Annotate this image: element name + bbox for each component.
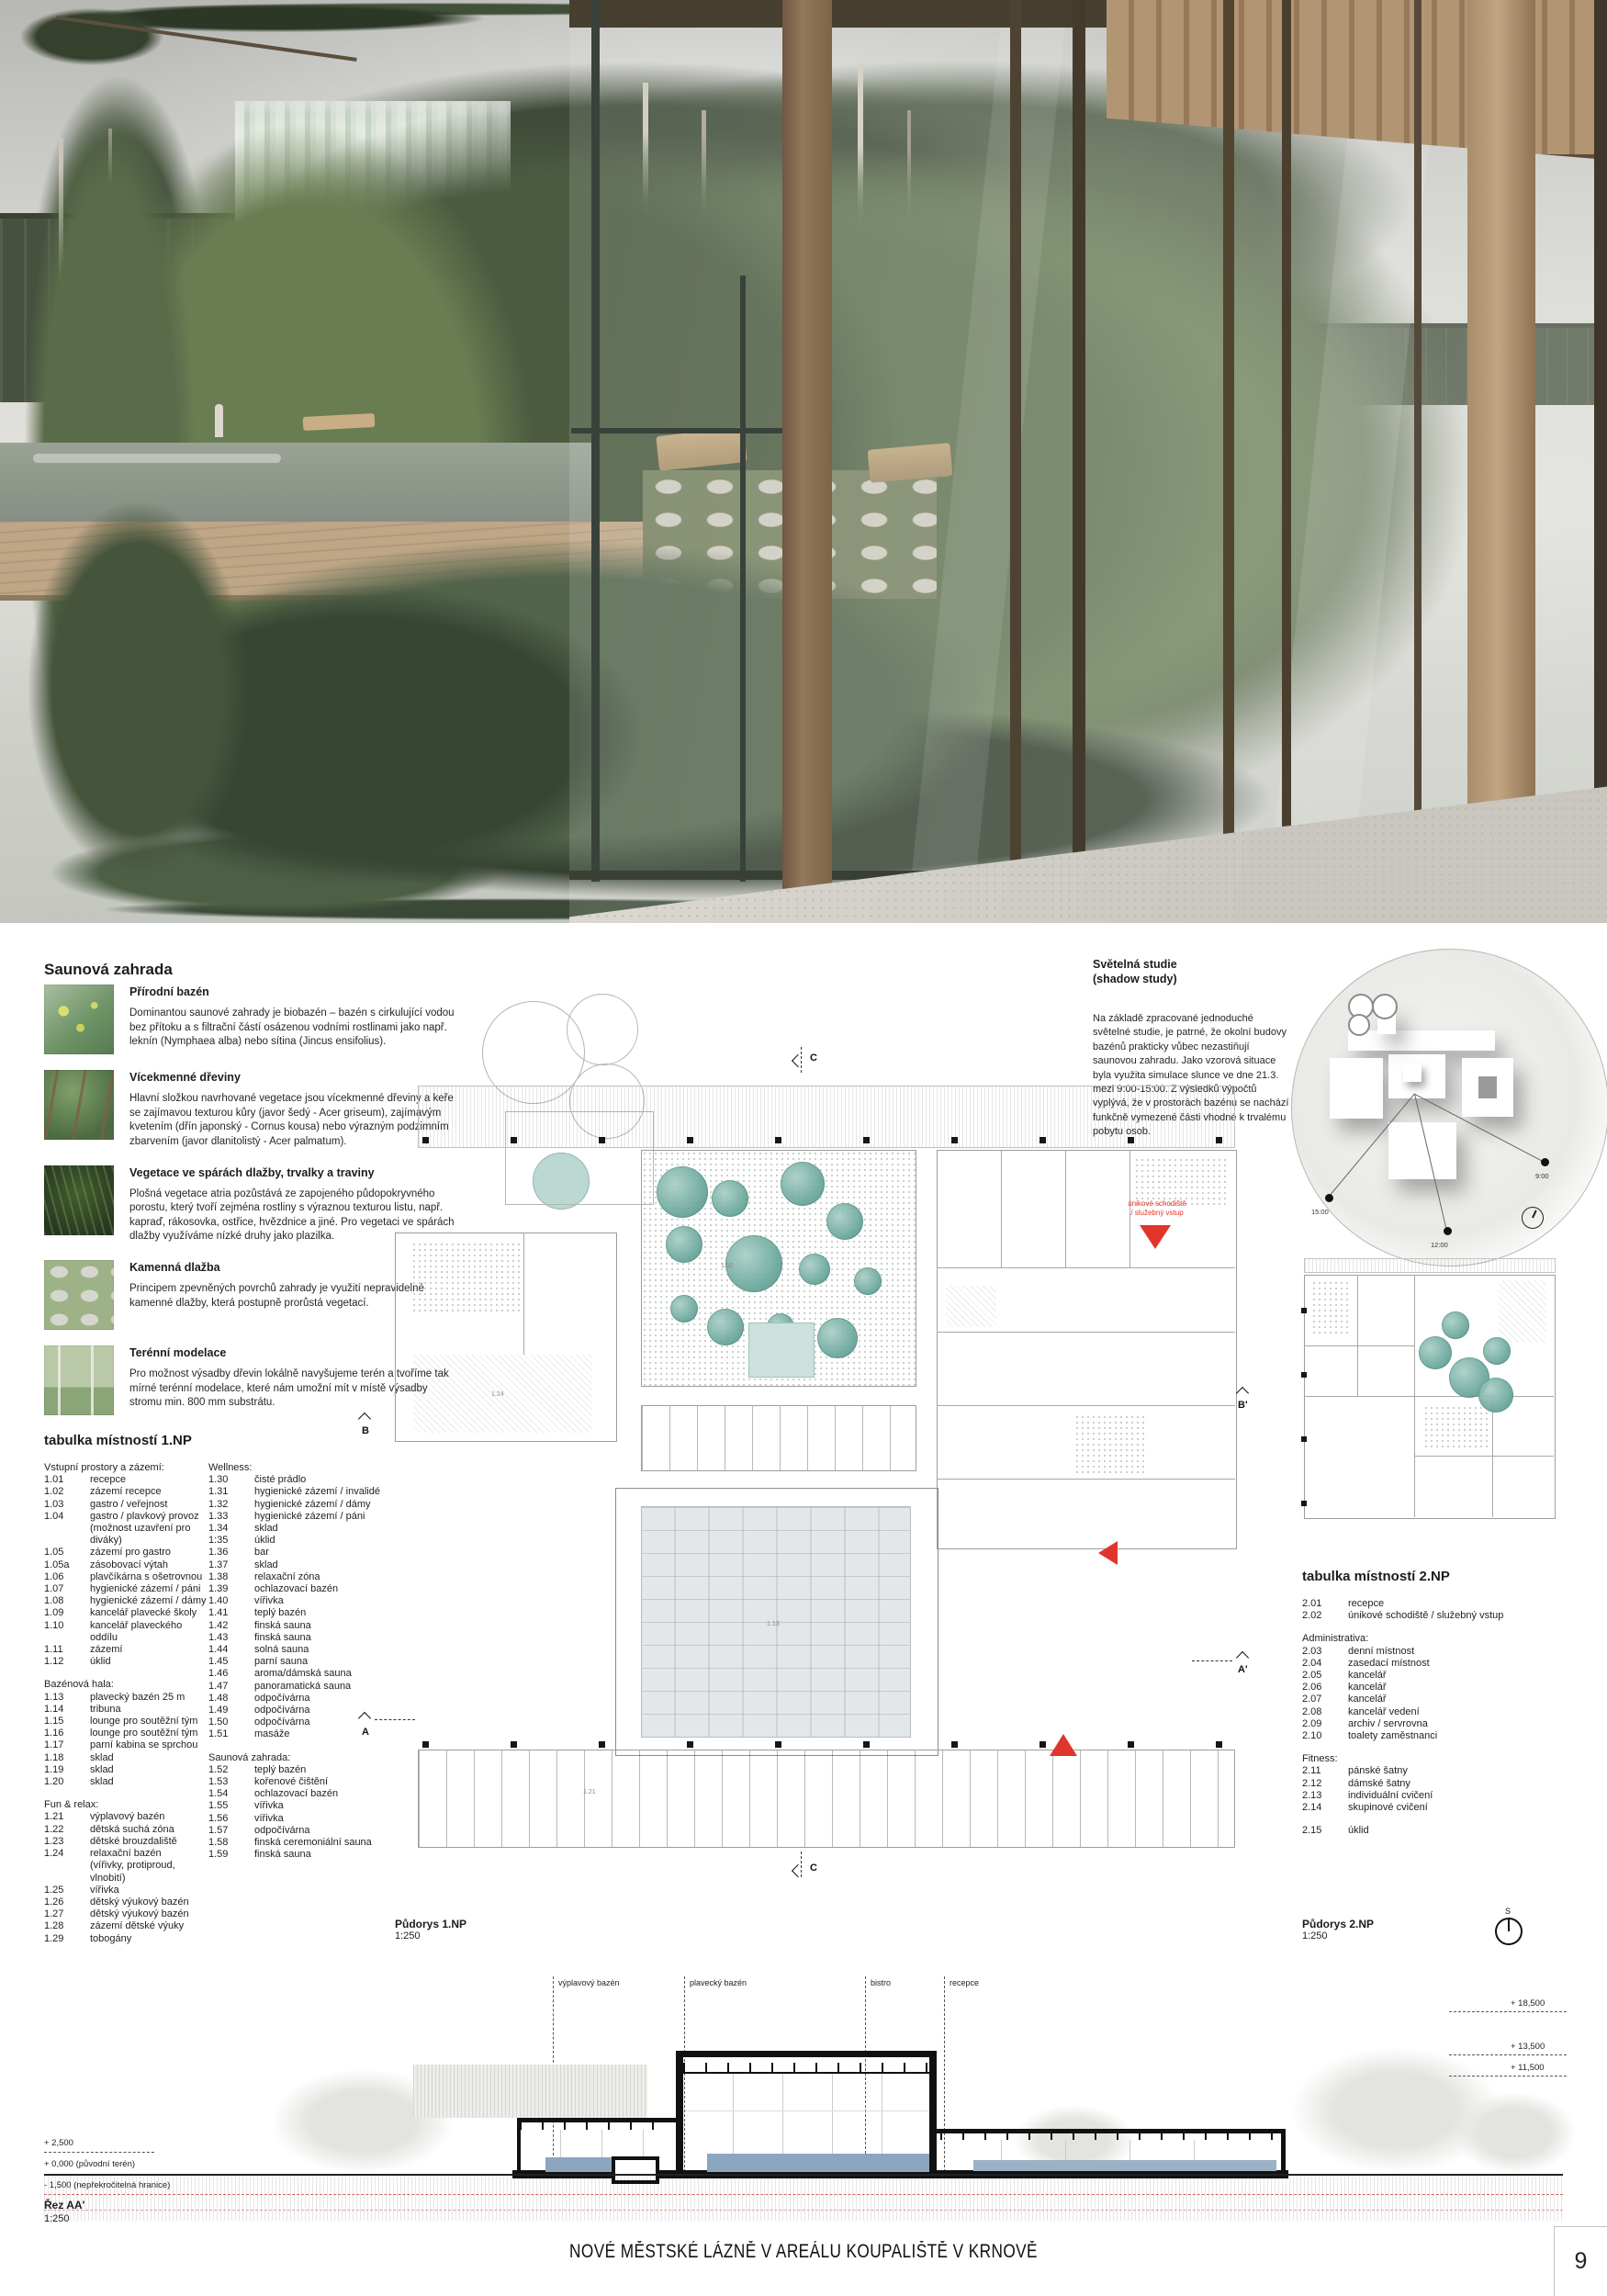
room-number-cell: 1.51 — [208, 1728, 254, 1740]
tree-canopy — [666, 1226, 702, 1263]
room-label-cell: odpočívárna — [254, 1693, 310, 1705]
room-number-cell: Fun & relax: — [44, 1799, 98, 1811]
room-number-cell: 1.04 — [44, 1511, 90, 1523]
shadow-study-title: Světelná studie (shadow study) — [1093, 957, 1177, 987]
garden-thumbnail-image — [44, 1165, 114, 1235]
shadow-study-title-line1: Světelná studie — [1093, 957, 1177, 972]
garden-thumbnail-image — [44, 1345, 114, 1415]
room-table-row — [44, 1668, 208, 1679]
ground-line — [44, 2174, 1563, 2176]
room-table-row: 1.20 sklad — [44, 1776, 208, 1788]
room-table-row: 1.09 kancelář plavecké školy — [44, 1607, 208, 1619]
room-number-cell: 1.50 — [208, 1716, 254, 1728]
room-number-cell: 1.28 — [44, 1920, 90, 1932]
room-number-cell: 1:35 — [208, 1535, 254, 1547]
glass-mullion-5 — [1282, 0, 1291, 923]
room-number-cell: 1.33 — [208, 1511, 254, 1523]
north-needle — [1508, 1919, 1510, 1931]
room-label-cell: výplavový bazén — [90, 1811, 164, 1823]
room-table-row — [1302, 1742, 1532, 1753]
room-label-cell: odpočívárna — [254, 1825, 310, 1837]
section-name: Řez AA' — [44, 2199, 84, 2212]
room-label-cell: úklid — [254, 1535, 275, 1547]
room-label-cell: archiv / servrovna — [1348, 1718, 1428, 1730]
room-number-cell — [44, 1668, 90, 1679]
limit-line-red — [44, 2210, 1563, 2211]
elevation-label: - 1,500 (nepřekročitelná hranice) — [44, 2180, 170, 2190]
room-number-cell: 2.03 — [1302, 1646, 1348, 1658]
room-label-cell: sklad — [90, 1776, 114, 1788]
room-table-row: 2.10 toalety zaměstnanci — [1302, 1730, 1532, 1742]
building-mass-core — [1403, 1064, 1422, 1082]
elevation-leader — [1449, 2076, 1567, 2077]
room-table-row: 1.43 finská sauna — [208, 1632, 397, 1644]
room-label-cell: odpočívárna — [254, 1705, 310, 1716]
room-number-cell: 1.56 — [208, 1813, 254, 1825]
room-table-row: 1.34 sklad — [208, 1523, 397, 1535]
tree-canopy — [670, 1295, 698, 1322]
room-table-row: 1.26 dětský výukový bazén — [44, 1896, 208, 1908]
background-building — [413, 2065, 647, 2118]
section-wall — [517, 2118, 521, 2175]
room-table-row: 1.08 hygienické zázemí / dámy — [44, 1595, 208, 1607]
tree-canopy — [712, 1180, 748, 1217]
room-number-cell: 1.29 — [44, 1933, 90, 1945]
room-label-cell: (možnost uzavření pro diváky) — [90, 1523, 208, 1547]
room-number-cell: 2.01 — [1302, 1598, 1348, 1610]
room-number: 1.21 — [583, 1789, 596, 1795]
room-number-cell: 1.14 — [44, 1704, 90, 1716]
room-number-cell: 1.16 — [44, 1728, 90, 1739]
room-number-cell: 1.34 — [208, 1523, 254, 1535]
section-marker-b-prime: B' — [1238, 1400, 1248, 1411]
tree-canopy — [725, 1235, 782, 1292]
room-label-cell: vířivka — [254, 1800, 284, 1812]
room-label-cell: kancelář vedení — [1348, 1706, 1420, 1718]
partition-wall — [1065, 1150, 1066, 1267]
room-number: 1.24 — [491, 1391, 504, 1398]
table-1np-title: tabulka místností 1.NP — [44, 1433, 192, 1448]
room-label-cell: parní sauna — [254, 1656, 308, 1668]
label-leader — [944, 1976, 945, 2172]
room-table-row: 1.19 sklad — [44, 1764, 208, 1776]
room-table-row: Fitness: — [1302, 1753, 1532, 1765]
floor-plan-1np: 1.52 1.13 1.24 1.21 — [395, 992, 1235, 1869]
room-number-cell: Bazénová hala: — [44, 1679, 114, 1691]
room-label-cell: hygienické zázemí / dámy — [90, 1595, 207, 1607]
room-table-row: 1.22 dětská suchá zóna — [44, 1824, 208, 1836]
room-number-cell: 1.59 — [208, 1849, 254, 1861]
room-table-row: 1.46 aroma/dámská sauna — [208, 1668, 397, 1680]
room-number-cell: 1.58 — [208, 1837, 254, 1849]
room-label-cell: lounge pro soutěžní tým — [90, 1728, 197, 1739]
room-table-row: 1.59 finská sauna — [208, 1849, 397, 1861]
room-table-row: 1.58 finská ceremoniální sauna — [208, 1837, 397, 1849]
room-label-cell: (vířivky, protiproud, vlnobití) — [90, 1860, 208, 1884]
room-table-row: (možnost uzavření pro diváky) — [44, 1523, 208, 1547]
room-table-row: Fun & relax: — [44, 1799, 208, 1811]
section-label: recepce — [950, 1978, 979, 1987]
room-number-cell: 1.46 — [208, 1668, 254, 1680]
room-table-row: 1.05 zázemí pro gastro — [44, 1547, 208, 1559]
room-table-row: 1.29 tobogány — [44, 1933, 208, 1945]
room-table-row: 1.36 bar — [208, 1547, 397, 1559]
room-number-cell: Vstupní prostory a zázemí: — [44, 1462, 164, 1474]
room-label-cell: dětské brouzdaliště — [90, 1836, 177, 1848]
room-label-cell: zázemí recepce — [90, 1486, 162, 1498]
room-number-cell — [1302, 1622, 1348, 1633]
room-label-cell: sklad — [254, 1559, 278, 1571]
room-label-cell: panoramatická sauna — [254, 1681, 351, 1693]
room-table-row: 1.06 plavčíkárna s ošetrovnou — [44, 1571, 208, 1583]
column-row — [422, 1137, 1229, 1143]
tree-canopy — [781, 1162, 825, 1206]
section-transom — [685, 2110, 929, 2111]
timber-column-a — [782, 0, 832, 923]
hatched-room — [946, 1286, 996, 1327]
room-label-cell: únikové schodiště / služebný vstup — [1348, 1610, 1503, 1622]
hatched-room — [1499, 1280, 1546, 1343]
hatched-room — [1311, 1280, 1352, 1335]
pool-water-relax — [973, 2160, 1276, 2171]
room-number-cell: 1.45 — [208, 1656, 254, 1668]
room-label-cell: vířivka — [254, 1813, 284, 1825]
room-number-cell: 2.15 — [1302, 1825, 1348, 1837]
elevation-label: + 0,000 (původní terén) — [44, 2159, 135, 2169]
room-table-row: 1.01 recepce — [44, 1474, 208, 1486]
annotation-line2: / služebný vstup — [1107, 1209, 1208, 1218]
room-number: 1.13 — [767, 1621, 780, 1627]
room-table-row: 1.25 vířivka — [44, 1885, 208, 1896]
room-table-row: 1.03 gastro / veřejnost — [44, 1499, 208, 1511]
room-label-cell: zázemí dětské výuky — [90, 1920, 184, 1932]
label-leader — [684, 1976, 685, 2172]
timber-column-b — [1467, 0, 1535, 923]
room-number-cell — [1302, 1742, 1348, 1753]
entrance-marker-triangle-up — [1050, 1734, 1077, 1756]
hatched-room — [1074, 1414, 1148, 1474]
floor-plan-2np — [1304, 1258, 1566, 1534]
room-label-cell: recepce — [90, 1474, 126, 1486]
room-number-cell: 1.01 — [44, 1474, 90, 1486]
room-number-cell: 2.12 — [1302, 1778, 1348, 1790]
room-table-row: 1.37 sklad — [208, 1559, 397, 1571]
room-table-row: 1.45 parní sauna — [208, 1656, 397, 1668]
room-label-cell: ochlazovací bazén — [254, 1583, 338, 1595]
partition-wall — [1357, 1275, 1358, 1396]
room-number-cell — [208, 1741, 254, 1752]
room-table-row: Administrativa: — [1302, 1633, 1532, 1645]
room-table-row: Vstupní prostory a zázemí: — [44, 1462, 208, 1474]
section-marker-c-top: C — [810, 1052, 817, 1064]
room-table-row: 1.32 hygienické zázemí / dámy — [208, 1499, 397, 1511]
room-table-row: 2.01 recepce — [1302, 1598, 1532, 1610]
room-label-cell: hygienické zázemí / páni — [90, 1583, 200, 1595]
tree-canopy — [817, 1318, 858, 1358]
room-label-cell: odpočívárna — [254, 1716, 310, 1728]
room-table-row: 1.44 solná sauna — [208, 1644, 397, 1656]
room-number-cell: 1.25 — [44, 1885, 90, 1896]
room-table-row: 2.11 pánské šatny — [1302, 1765, 1532, 1777]
room-table-row: 1.21 výplavový bazén — [44, 1811, 208, 1823]
room-number-cell: Fitness: — [1302, 1753, 1338, 1765]
room-table-row: 1.38 relaxační zóna — [208, 1571, 397, 1583]
room-label-cell: kořenové čištění — [254, 1776, 328, 1788]
section-truss — [683, 2063, 929, 2074]
section-roof — [676, 2051, 937, 2057]
limit-line-red — [44, 2194, 1563, 2195]
section-marker-chevron — [1236, 1651, 1249, 1664]
room-number-cell — [44, 1788, 90, 1799]
room-table-row: 1.28 zázemí dětské výuky — [44, 1920, 208, 1932]
changing-rooms-band — [418, 1750, 1235, 1848]
room-table-row: 2.14 skupinové cvičení — [1302, 1802, 1532, 1814]
partition-wall — [1304, 1396, 1554, 1397]
room-label-cell: finská sauna — [254, 1620, 311, 1632]
room-table-row: 1.39 ochlazovací bazén — [208, 1583, 397, 1595]
table-2np-rows: 2.01 recepce 2.02 únikové schodiště / sl… — [1302, 1598, 1532, 1837]
elevation-label: + 2,500 — [44, 2138, 73, 2148]
room-label-cell: hygienické zázemí / invalidé — [254, 1486, 380, 1498]
toboggan-tube-circle — [1348, 1014, 1370, 1036]
north-label: S — [1505, 1907, 1511, 1916]
room-table-row: 1.02 zázemí recepce — [44, 1486, 208, 1498]
room-number-cell: 2.02 — [1302, 1610, 1348, 1622]
building-mass — [1330, 1058, 1383, 1119]
room-number-cell: 2.14 — [1302, 1802, 1348, 1814]
room-table-row: 2.03 denní místnost — [1302, 1646, 1532, 1658]
room-label-cell: denní místnost — [1348, 1646, 1414, 1658]
room-label-cell: dětský výukový bazén — [90, 1908, 189, 1920]
room-table-row: 2.12 dámské šatny — [1302, 1778, 1532, 1790]
sun-position-dot-9 — [1541, 1158, 1549, 1166]
tree-canopy — [1483, 1337, 1511, 1365]
room-table-row: Bazénová hala: — [44, 1679, 208, 1691]
door-frame — [740, 276, 746, 882]
room-table-row: 2.15 úklid — [1302, 1825, 1532, 1837]
room-number-cell: 1.53 — [208, 1776, 254, 1788]
room-label-cell: skupinové cvičení — [1348, 1802, 1428, 1814]
elevation-label: + 13,500 — [1511, 2042, 1545, 2052]
room-number-cell: 1.19 — [44, 1764, 90, 1776]
room-table-row: 1.52 teplý bazén — [208, 1764, 397, 1776]
facade-edge — [1594, 0, 1607, 923]
room-number-cell: 1.24 — [44, 1848, 90, 1860]
room-number-cell: 1.38 — [208, 1571, 254, 1583]
room-table-row: 2.06 kancelář — [1302, 1682, 1532, 1694]
room-label-cell: sklad — [254, 1523, 278, 1535]
room-table-row: 1.17 parní kabina se sprchou — [44, 1739, 208, 1751]
sauna-garden-title: Saunová zahrada — [44, 961, 173, 979]
room-table-row: Saunová zahrada: — [208, 1752, 397, 1764]
room-table-row: 1.49 odpočívárna — [208, 1705, 397, 1716]
label-leader — [865, 1976, 866, 2172]
room-label-cell: finská sauna — [254, 1849, 311, 1861]
partition-wall — [937, 1332, 1235, 1333]
toboggan-tube-circle — [1372, 994, 1398, 1019]
plan2-label: Půdorys 2.NP — [1302, 1918, 1374, 1930]
room-label-cell: kancelář — [1348, 1670, 1387, 1682]
garden-thumbnail-image — [44, 985, 114, 1054]
section-label: bistro — [871, 1978, 891, 1987]
glass-mullion-4 — [1223, 0, 1234, 923]
elevation-label: + 11,500 — [1511, 2063, 1545, 2073]
room-table-row: 1.54 ochlazovací bazén — [208, 1788, 397, 1800]
section-truss — [520, 2122, 674, 2130]
plan1-scale: 1:250 — [395, 1930, 466, 1941]
plan1-caption: Půdorys 1.NP 1:250 — [395, 1918, 466, 1941]
room-table-row: 1.13 plavecký bazén 25 m — [44, 1692, 208, 1704]
room-label-cell: ochlazovací bazén — [254, 1788, 338, 1800]
room-label-cell: parní kabina se sprchou — [90, 1739, 197, 1751]
room-number-cell: 1.13 — [44, 1692, 90, 1704]
room-table-row: 1.16 lounge pro soutěžní tým — [44, 1728, 208, 1739]
room-number-cell: 1.27 — [44, 1908, 90, 1920]
presentation-board: Saunová zahrada Přírodní bazén Dominanto… — [0, 0, 1607, 2296]
room-table-row: 2.09 archiv / servrovna — [1302, 1718, 1532, 1730]
room-number-cell: Wellness: — [208, 1462, 252, 1474]
room-number-cell: 1.41 — [208, 1607, 254, 1619]
room-label-cell: zázemí — [90, 1644, 122, 1656]
section-label: plavecký bazén — [690, 1978, 747, 1987]
room-number-cell: 1.20 — [44, 1776, 90, 1788]
section-wall — [929, 2051, 937, 2175]
room-number-cell: 1.47 — [208, 1681, 254, 1693]
room-table-row: 1.55 vířivka — [208, 1800, 397, 1812]
room-table-row: 1:35 úklid — [208, 1535, 397, 1547]
tree-canopy — [1419, 1336, 1452, 1369]
room-number-cell: 2.05 — [1302, 1670, 1348, 1682]
room-label-cell: vířivka — [254, 1595, 284, 1607]
pool-water-main — [707, 2154, 929, 2172]
room-label-cell: toalety zaměstnanci — [1348, 1730, 1437, 1742]
section-label: výplavový bazén — [558, 1978, 620, 1987]
room-number-cell: 2.13 — [1302, 1790, 1348, 1802]
garden-warm-pool — [748, 1322, 815, 1378]
room-label-cell: aroma/dámská sauna — [254, 1668, 352, 1680]
room-label-cell: plavčíkárna s ošetrovnou — [90, 1571, 202, 1583]
room-label-cell: teplý bazén — [254, 1764, 306, 1776]
room-number-cell: 1.12 — [44, 1656, 90, 1668]
room-number-cell: 1.15 — [44, 1716, 90, 1728]
sun-time-label: 12:00 — [1431, 1241, 1448, 1249]
room-number-cell: 1.18 — [44, 1752, 90, 1764]
shadow-study-title-line2: (shadow study) — [1093, 972, 1177, 986]
partition-wall — [523, 1232, 524, 1355]
room-number-cell: Administrativa: — [1302, 1633, 1368, 1645]
room-number-cell: 1.32 — [208, 1499, 254, 1511]
room-number-cell: 1.49 — [208, 1705, 254, 1716]
room-label-cell: tobogány — [90, 1933, 131, 1945]
glass-mullion-3 — [1073, 0, 1085, 923]
room-number-cell: 1.07 — [44, 1583, 90, 1595]
subsoil-hatch — [44, 2177, 1563, 2221]
room-number-cell: 1.40 — [208, 1595, 254, 1607]
room-table-row: 2.04 zasedací místnost — [1302, 1658, 1532, 1670]
partition-wall — [1414, 1456, 1554, 1457]
room-table-row: 1.24 relaxační bazén — [44, 1848, 208, 1860]
room-label-cell: zásobovací výtah — [90, 1559, 168, 1571]
room-number-cell: 1.23 — [44, 1836, 90, 1848]
section-marker-c-bottom: C — [810, 1863, 817, 1874]
section-marker-b: B — [362, 1425, 369, 1436]
room-table-row: 1.48 odpočívárna — [208, 1693, 397, 1705]
room-table-row: 1.41 teplý bazén — [208, 1607, 397, 1619]
room-number-cell: 1.22 — [44, 1824, 90, 1836]
room-number-cell — [1302, 1814, 1348, 1825]
room-label-cell: pánské šatny — [1348, 1765, 1408, 1777]
room-number-cell: 1.11 — [44, 1644, 90, 1656]
rendering-sauna-garden — [0, 0, 1607, 923]
room-number-cell: 1.08 — [44, 1595, 90, 1607]
room-table-row: 1.33 hygienické zázemí / páni — [208, 1511, 397, 1523]
room-number-cell: 1.48 — [208, 1693, 254, 1705]
room-table-row: 1.11 zázemí — [44, 1644, 208, 1656]
hatched-room — [1423, 1405, 1488, 1449]
room-table-row: (vířivky, protiproud, vlnobití) — [44, 1860, 208, 1884]
partition-wall — [1001, 1150, 1002, 1267]
sun-time-label: 15:00 — [1311, 1208, 1329, 1216]
room-number-cell: 1.39 — [208, 1583, 254, 1595]
partition-wall — [937, 1267, 1235, 1268]
room-label-cell: tribuna — [90, 1704, 121, 1716]
tree-canopy — [707, 1309, 744, 1345]
room-label-cell: kancelář — [1348, 1682, 1387, 1694]
room-label-cell: gastro / veřejnost — [90, 1499, 167, 1511]
building-courtyard-notch — [1478, 1076, 1497, 1098]
room-number-cell: 1.02 — [44, 1486, 90, 1498]
room-table-row: 1.07 hygienické zázemí / páni — [44, 1583, 208, 1595]
table-2np-title: tabulka místností 2.NP — [1302, 1569, 1450, 1584]
room-label-cell: gastro / plavkový provoz — [90, 1511, 199, 1523]
glass-mullion-2 — [1010, 0, 1021, 923]
room-label-cell: kancelář plaveckého oddílu — [90, 1620, 208, 1644]
room-table-row: 2.05 kancelář — [1302, 1670, 1532, 1682]
partition-wall — [1304, 1345, 1414, 1346]
room-number-cell: 1.57 — [208, 1825, 254, 1837]
sauna-row — [641, 1405, 916, 1471]
partition-wall — [937, 1405, 1235, 1406]
room-number-cell: 1.30 — [208, 1474, 254, 1486]
room-label-cell: teplý bazén — [254, 1607, 306, 1619]
section-truss — [940, 2133, 1282, 2140]
plan1-label: Půdorys 1.NP — [395, 1918, 466, 1930]
room-number-cell: 1.21 — [44, 1811, 90, 1823]
room-label-cell: dámské šatny — [1348, 1778, 1410, 1790]
tree-canopy — [657, 1166, 708, 1218]
room-label-cell: zasedací místnost — [1348, 1658, 1430, 1670]
roof-band — [1304, 1258, 1556, 1273]
room-table-row: 1.56 vířivka — [208, 1813, 397, 1825]
room-label-cell: plavecký bazén 25 m — [90, 1692, 185, 1704]
table-1np-col2: Wellness: 1.30 čisté prádlo 1.31 hygieni… — [208, 1462, 397, 1862]
tree-canopy — [799, 1254, 830, 1285]
hatched-room — [411, 1242, 522, 1315]
building-mass — [1348, 1030, 1495, 1051]
room-number-cell: 1.17 — [44, 1739, 90, 1751]
room-table-row — [44, 1788, 208, 1799]
room-table-row — [1302, 1814, 1532, 1825]
room-number-cell: 2.06 — [1302, 1682, 1348, 1694]
tree-silhouette — [1451, 2089, 1579, 2177]
room-label-cell: finská ceremoniální sauna — [254, 1837, 372, 1849]
glass-mullion-6 — [1414, 0, 1422, 923]
room-number: 1.52 — [721, 1263, 734, 1269]
room-label-cell: zázemí pro gastro — [90, 1547, 171, 1559]
section-wall — [1281, 2129, 1286, 2175]
page-number: 9 — [1575, 2248, 1588, 2275]
column-row — [1301, 1286, 1307, 1506]
